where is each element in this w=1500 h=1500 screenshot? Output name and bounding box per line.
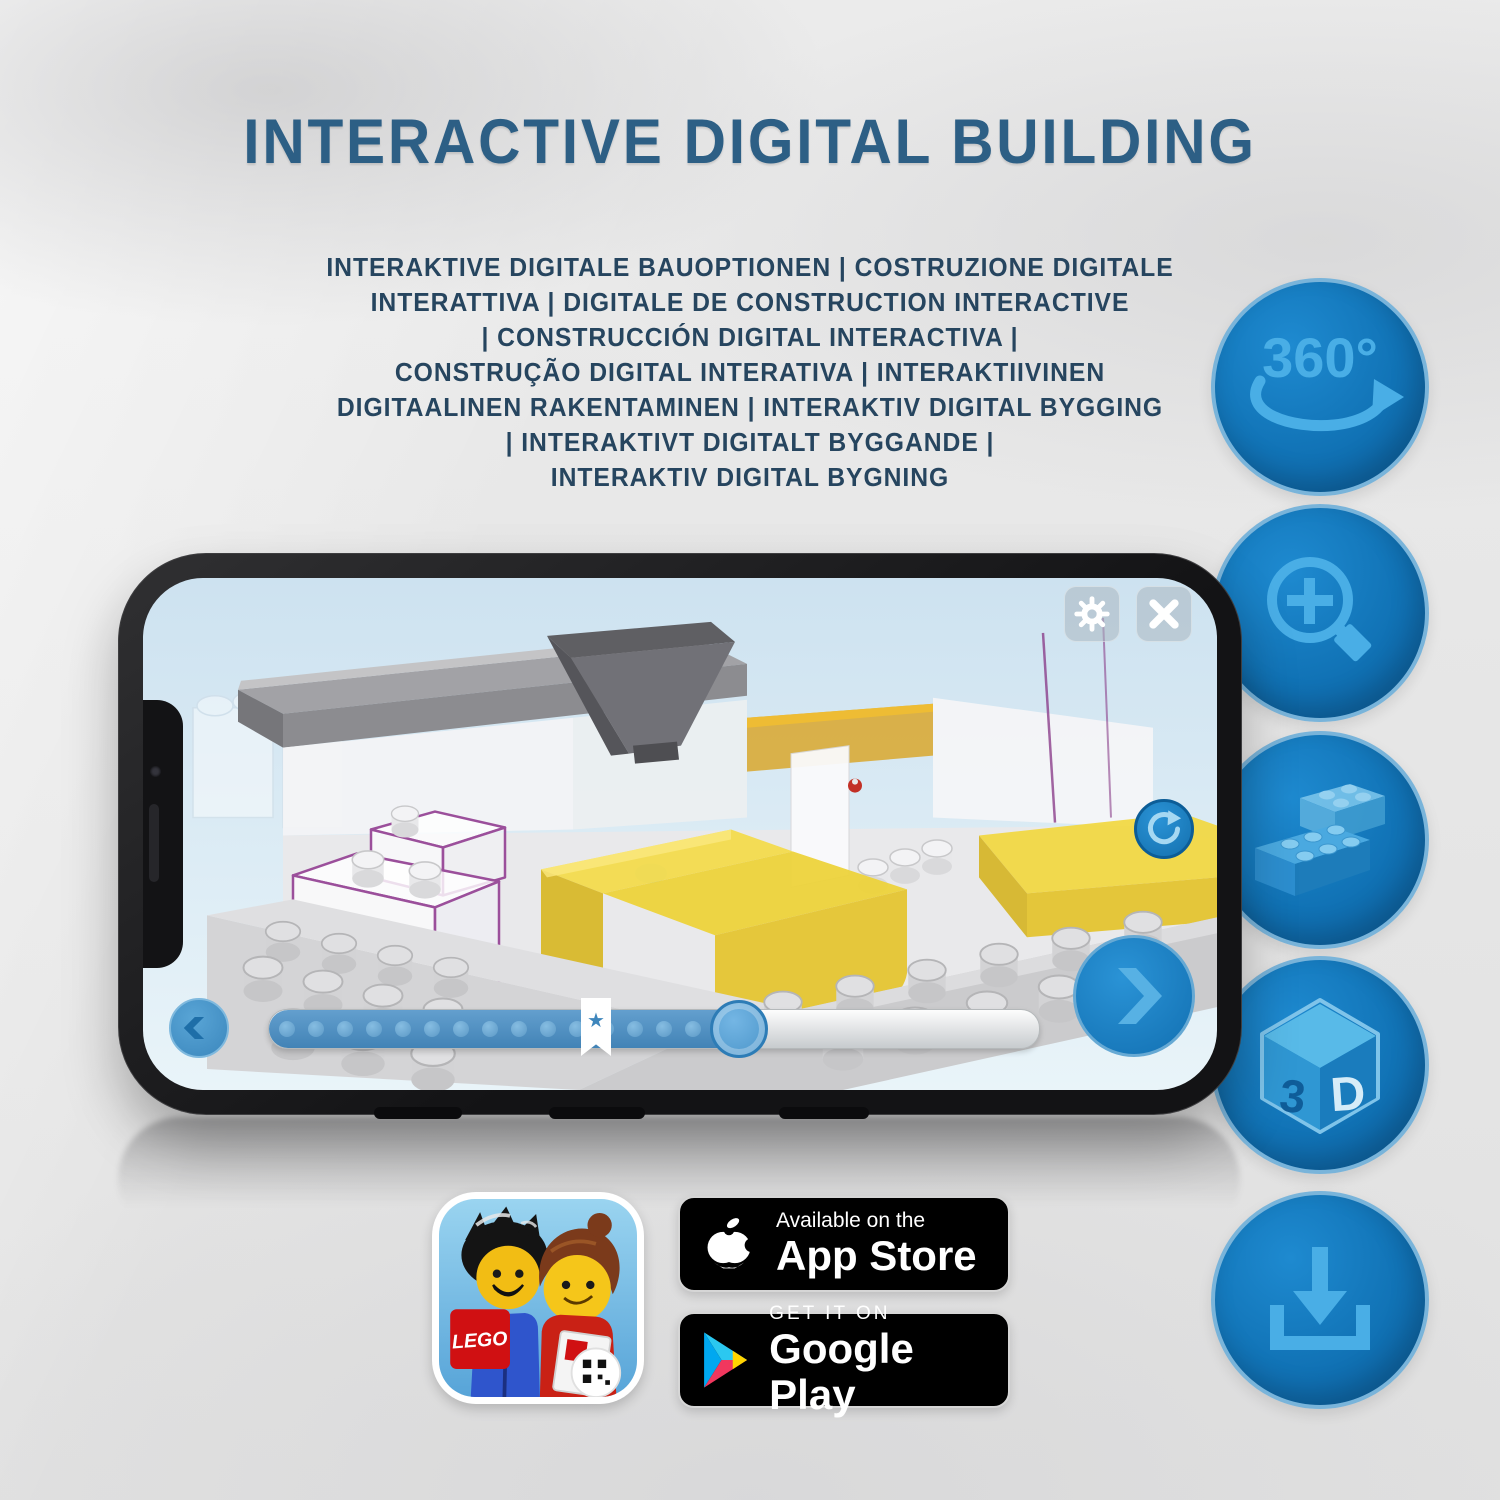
progress-fill [269,1010,741,1048]
feature-bricks-badge [1211,731,1429,949]
phone-side-button [779,1107,869,1119]
front-camera [150,766,161,777]
rotate-360-icon: 360° [1234,321,1406,453]
bricks-icon [1245,770,1395,910]
phone-side-button [374,1107,462,1119]
phone-notch [143,700,183,968]
minifigures-illustration: LEGO [439,1199,637,1397]
star-icon: ★ [587,1008,605,1033]
feature-zoom-badge [1211,504,1429,722]
subtitle-line: INTERAKTIVE DIGITALE BAUOPTIONEN | COSTR… [133,250,1368,285]
chevron-left-icon [177,1006,221,1050]
phone-screen: ★ [143,578,1217,1090]
apple-logo-icon [700,1211,758,1277]
feature-download-badge [1211,1191,1429,1409]
close-button[interactable] [1136,586,1192,642]
subtitle-line: | CONSTRUCCIÓN DIGITAL INTERACTIVA | [133,320,1368,355]
subtitle-line: | INTERAKTIVT DIGITALT BYGGANDE | [133,425,1368,460]
phone-mockup: ★ [118,553,1242,1115]
next-step-button[interactable] [1073,935,1195,1057]
multilingual-subtitle: INTERAKTIVE DIGITALE BAUOPTIONEN | COSTR… [133,250,1368,495]
3d-view-icon: 3 D [1249,994,1391,1136]
lego-app-icon-art: LEGO [439,1199,637,1397]
phone-side-button [549,1107,645,1119]
zoom-in-icon [1255,548,1385,678]
page-title: INTERACTIVE DIGITAL BUILDING [53,106,1448,178]
marketing-poster: INTERACTIVE DIGITAL BUILDING INTERAKTIVE… [0,0,1500,1500]
feature-3d-badge: 3 D [1211,956,1429,1174]
rotate-icon [1144,809,1184,849]
google-play-tagline: GET IT ON [769,1302,1008,1326]
reset-rotation-button[interactable] [1134,799,1194,859]
feature-360-badge: 360° [1211,278,1429,496]
app-store-label: App Store [776,1233,977,1279]
previous-step-button[interactable] [169,998,229,1058]
lego-app-icon[interactable]: LEGO [432,1192,644,1404]
svg-text:360°: 360° [1262,326,1378,389]
progress-thumb[interactable] [710,1000,768,1058]
subtitle-line: CONSTRUÇÃO DIGITAL INTERATIVA | INTERAKT… [133,355,1368,390]
earpiece-speaker [149,804,159,882]
app-store-tagline: Available on the [776,1209,977,1233]
subtitle-line: DIGITAALINEN RAKENTAMINEN | INTERAKTIV D… [133,390,1368,425]
build-progress-bar[interactable]: ★ [268,1009,1040,1049]
google-play-icon [700,1330,751,1390]
gear-icon [1074,596,1110,632]
subtitle-line: INTERAKTIV DIGITAL BYGNING [133,460,1368,495]
google-play-badge[interactable]: GET IT ON Google Play [678,1312,1010,1408]
google-play-label: Google Play [769,1326,1008,1418]
settings-button[interactable] [1064,586,1120,642]
download-icon [1255,1241,1385,1359]
svg-text:3: 3 [1277,1069,1308,1123]
app-store-badge[interactable]: Available on the App Store [678,1196,1010,1292]
subtitle-line: INTERATTIVA | DIGITALE DE CONSTRUCTION I… [133,285,1368,320]
svg-text:D: D [1329,1067,1367,1122]
chevron-right-icon [1076,938,1192,1054]
close-icon [1147,597,1181,631]
svg-text:LEGO: LEGO [451,1328,508,1354]
